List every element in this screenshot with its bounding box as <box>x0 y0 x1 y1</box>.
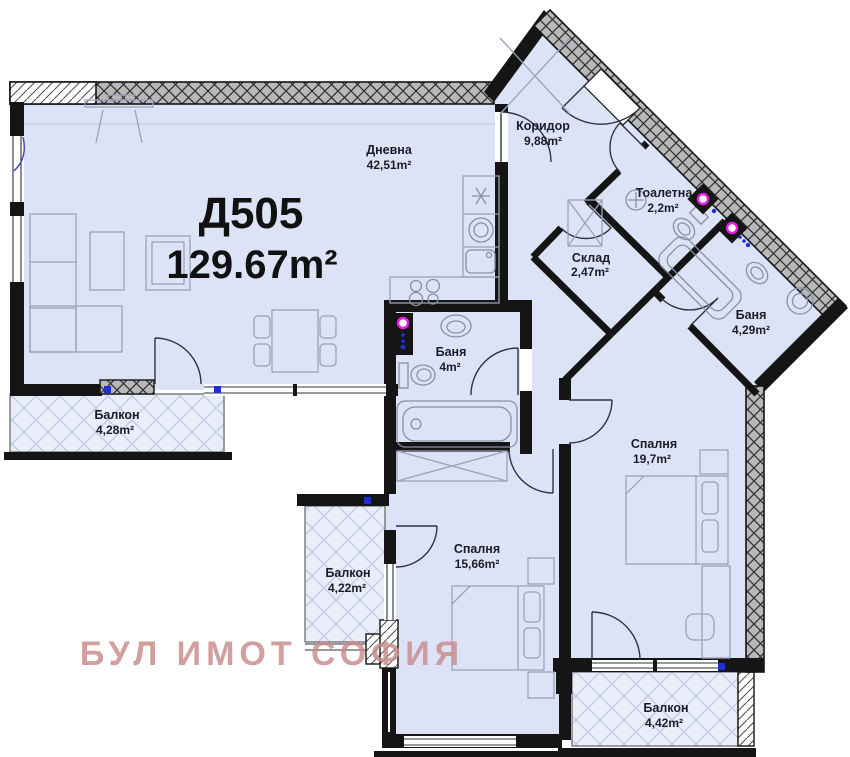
label-bedroom-197: Спалня <box>631 437 677 451</box>
watermark: БУЛ ИМОТ СОФИЯ <box>80 635 464 673</box>
label-living: Дневна <box>366 143 413 157</box>
wall-living-right-b <box>495 162 508 304</box>
balcony-428-rail <box>4 452 232 460</box>
marker-blue-icon <box>718 663 725 670</box>
label-corridor-area: 9,88m² <box>524 134 562 148</box>
wall-bed15-left-b <box>384 530 396 564</box>
label-balcony-442: Балкон <box>643 701 688 715</box>
label-balcony-422: Балкон <box>325 566 370 580</box>
marker-blue-icon <box>364 497 371 504</box>
wall-bed15-left-a <box>384 454 396 494</box>
label-corridor: Коридор <box>516 119 570 133</box>
marker-blue-icon <box>104 386 111 393</box>
label-bath-429-area: 4,29m² <box>732 323 770 337</box>
label-toilet-area: 2,2m² <box>647 201 678 215</box>
marker-blue-icon <box>214 386 221 393</box>
label-bedroom-1566-area: 15,66m² <box>455 557 500 571</box>
label-bedroom-1566: Спалня <box>454 542 500 556</box>
label-toilet: Тоалетна <box>636 186 694 200</box>
window-left-2 <box>10 216 24 282</box>
label-storage: Склад <box>572 251 610 265</box>
window-bed15-west <box>384 564 396 620</box>
floor-plan: Д505 129.67m² Дневна 42,51m² Коридор 9,8… <box>0 0 850 757</box>
opening-bath-door <box>520 349 532 391</box>
wall-living-bottom <box>10 384 102 396</box>
label-living-area: 42,51m² <box>367 158 412 172</box>
wall-top-left <box>10 82 96 104</box>
room-bedroom-197 <box>557 386 753 668</box>
wall-right <box>746 386 764 672</box>
wall-bath-right-b <box>520 391 532 454</box>
unit-id: Д505 <box>199 189 304 238</box>
room-bedroom-1566 <box>384 446 570 738</box>
label-bath-4-area: 4m² <box>439 360 460 374</box>
label-balcony-422-area: 4,22m² <box>328 581 366 595</box>
balcony-422-wall <box>297 494 389 506</box>
shaft-magenta-icon <box>727 223 737 233</box>
shaft-magenta-icon <box>398 318 408 328</box>
balcony-442-sill <box>738 672 754 746</box>
unit-total-area: 129.67m² <box>166 243 337 287</box>
label-balcony-428-area: 4,28m² <box>96 423 134 437</box>
label-storage-area: 2,47m² <box>571 265 609 279</box>
label-bedroom-197-area: 19,7m² <box>633 452 671 466</box>
wall-bath-right-a <box>520 303 532 351</box>
window-left-1 <box>10 136 24 202</box>
label-bath-429: Баня <box>736 308 767 322</box>
balcony-442-rail <box>558 748 756 757</box>
wall-bed19-left-a <box>559 378 571 400</box>
wall-bath-top <box>384 300 532 312</box>
shaft-magenta-icon <box>698 194 708 204</box>
label-balcony-428: Балкон <box>94 408 139 422</box>
wall-bed19-left-b <box>559 444 571 740</box>
label-bath-4: Баня <box>436 345 467 359</box>
floor-plan-page: Д505 129.67m² Дневна 42,51m² Коридор 9,8… <box>0 0 850 757</box>
wall-bed15-base <box>374 751 572 757</box>
label-balcony-442-area: 4,42m² <box>645 716 683 730</box>
